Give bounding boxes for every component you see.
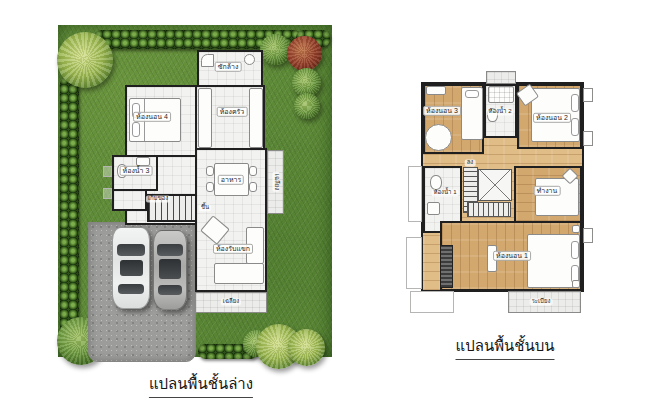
side-ledge (408, 166, 422, 222)
room-label: เฉลียง (221, 298, 241, 305)
bed-single (461, 87, 483, 140)
casement-window (583, 228, 593, 243)
nightstand (572, 280, 580, 288)
room-label: เก็บของ (146, 195, 170, 202)
tree (57, 32, 113, 88)
side-step (103, 166, 112, 177)
room-label: ห้องน้ำ 3 (120, 166, 153, 176)
room-label: ระเบียง (530, 298, 553, 305)
chair (249, 182, 257, 192)
casement-window (583, 88, 593, 102)
round-rug (425, 124, 452, 151)
room-label: ห้องน้ำ 2 (487, 108, 514, 115)
tree (288, 329, 325, 366)
upper-top-ledge (486, 71, 516, 84)
room-label: ลง (465, 159, 476, 166)
chair (206, 166, 214, 176)
room-label: ห้องรับแขก (213, 244, 253, 254)
ground-floor-plan: ห้องนอน 4 ซักล้าง ห้องครัว อาหาร ห้องน้ำ… (0, 0, 360, 415)
car-silver (153, 230, 187, 310)
pillow (132, 122, 140, 137)
hedge-left (60, 76, 79, 346)
lower-roof-ledge (410, 291, 454, 313)
room-label: ซักล้าง (215, 62, 242, 72)
sofa (535, 178, 579, 216)
room-label: ห้องนอน 3 (423, 106, 461, 116)
room-label: ห้องนอน 4 (133, 112, 171, 122)
casement-window (583, 131, 593, 146)
pillow (571, 241, 579, 259)
pillow (571, 94, 579, 112)
side-step (103, 188, 112, 199)
sofa (214, 263, 264, 284)
stair-void (478, 169, 512, 201)
car-windshield (157, 244, 183, 256)
car-white (112, 227, 150, 309)
upper-floor-caption: แปลนพื้นชั้นบน (456, 334, 555, 360)
car-rear-window (118, 284, 144, 294)
car-roof-glass (159, 259, 181, 279)
ground-floor-caption: แปลนพื้นชั้นล่าง (149, 372, 253, 398)
room-storage (112, 189, 147, 211)
washing-machine (201, 54, 214, 67)
upper-floor-plan: ห้องนอน 3 ห้องน้ำ 2 ห้องนอน 2 ห้องน้ำ 1 … (360, 0, 650, 415)
room-label: ขึ้น (199, 204, 211, 211)
room-label: ห้องครัว (217, 107, 248, 117)
car-roof-glass (120, 260, 143, 276)
room-label: ทำงาน (534, 186, 561, 196)
tree (294, 93, 320, 119)
room-label: ห้องนอน 1 (493, 251, 531, 261)
water-heater (244, 54, 255, 65)
sink (427, 202, 440, 215)
stairs-upper-landing (467, 202, 511, 217)
kitchen-counter (198, 88, 212, 148)
tree-red (287, 36, 322, 71)
floor-plan-sheet: ห้องนอน 4 ซักล้าง ห้องครัว อาหาร ห้องน้ำ… (0, 0, 650, 415)
room-label: ห้องนอน 2 (533, 113, 571, 123)
wardrobe (440, 245, 453, 288)
chair (206, 182, 214, 192)
car-rear-window (158, 285, 182, 295)
side-ledge (406, 237, 422, 289)
room-label: อาหาร (218, 175, 244, 185)
toilet (430, 175, 442, 190)
pillow (571, 118, 579, 136)
room-label: เฉลียง (272, 172, 279, 192)
car-windshield (117, 244, 145, 256)
nightstand (572, 225, 580, 233)
kitchen-counter (249, 88, 263, 148)
sink (136, 157, 150, 166)
room-label: ห้องน้ำ 1 (432, 189, 459, 196)
pillow (465, 90, 479, 98)
shower (488, 86, 514, 103)
chair (249, 166, 257, 176)
dresser (426, 86, 446, 95)
